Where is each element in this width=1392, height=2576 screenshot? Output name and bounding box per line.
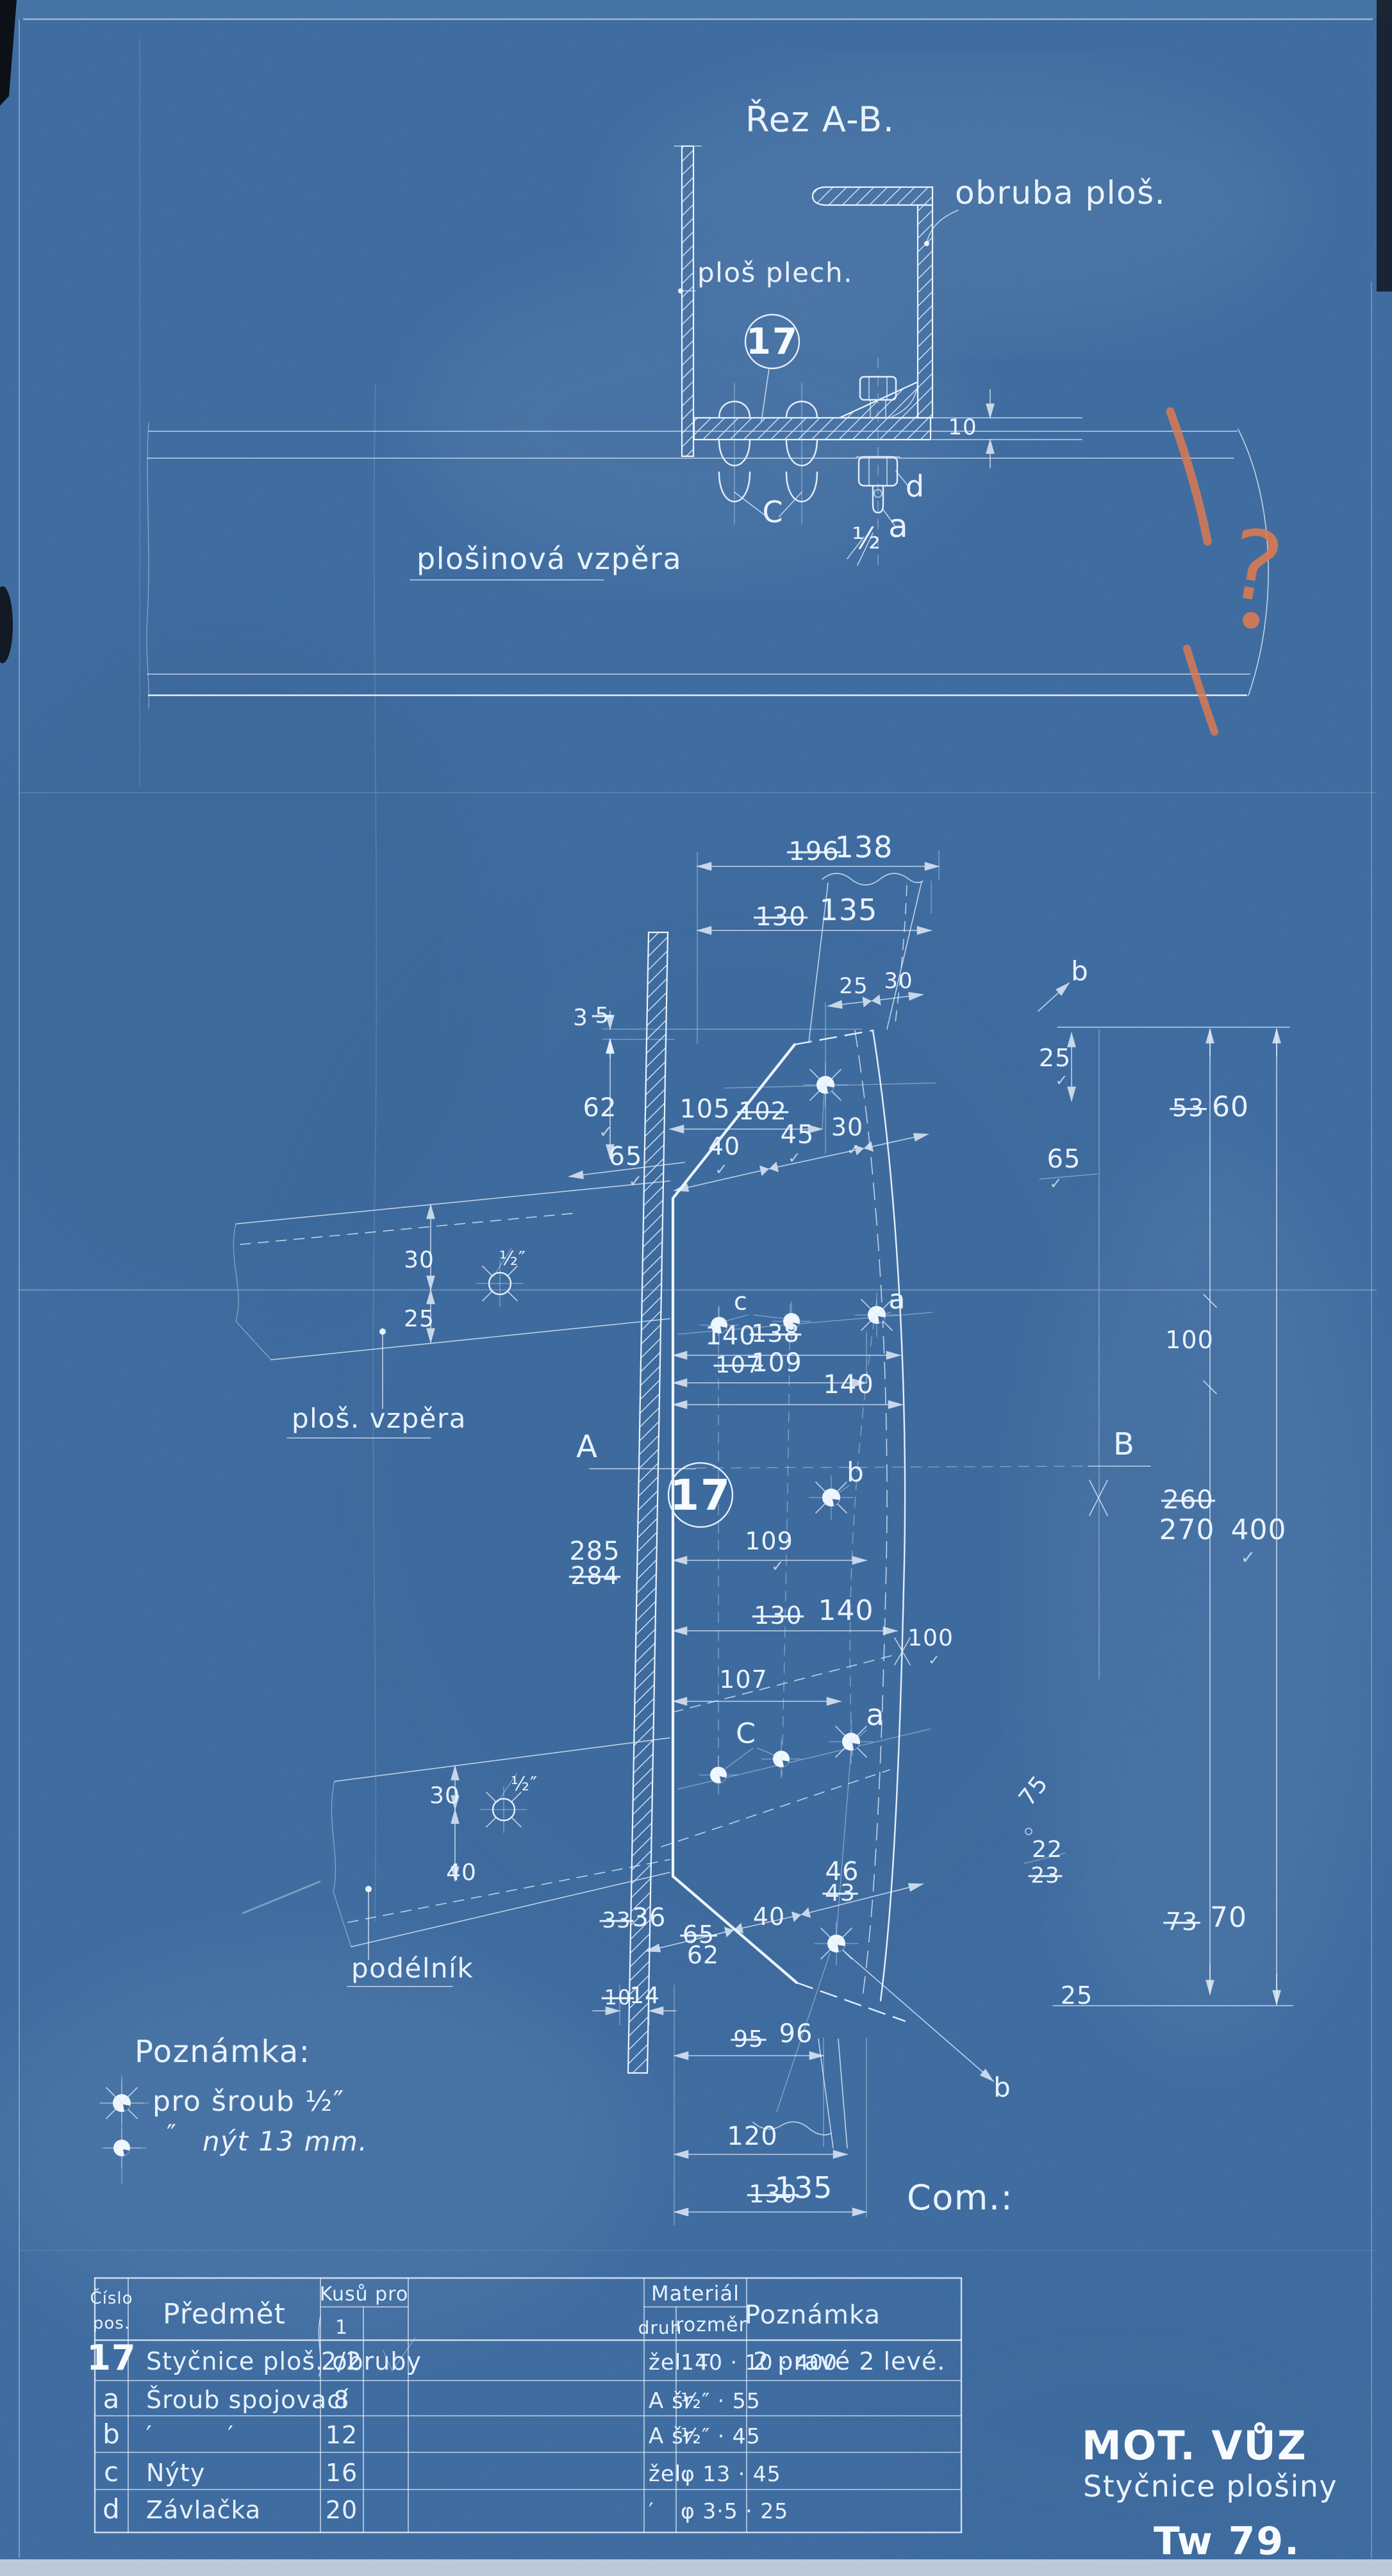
- dimension-label: ½″: [511, 1773, 538, 1796]
- dimension-label: 22: [1032, 1837, 1063, 1863]
- table-cell-position: b: [103, 2418, 120, 2450]
- dimension-label: C: [736, 1717, 756, 1750]
- table-cell-position: 17: [87, 2338, 136, 2378]
- dimension-label: C: [762, 495, 783, 529]
- dimension-label: 30: [404, 1247, 435, 1273]
- dimension-label: 45: [781, 1120, 815, 1150]
- dimension-label: 14: [629, 1983, 660, 2009]
- header-rozmer: rozměr: [675, 2314, 747, 2336]
- part-number: 17: [746, 321, 799, 363]
- table-cell-material-size: ½″ · 55: [681, 2388, 761, 2413]
- dimension-label: 60: [1212, 1091, 1249, 1123]
- table-cell-note: 2 pravé 2 levé.: [753, 2347, 945, 2375]
- splice-plate: [694, 418, 931, 440]
- dimension-label: 65: [609, 1142, 643, 1171]
- dimension-label: 30: [884, 968, 913, 994]
- table-cell-position: d: [103, 2493, 120, 2525]
- table-cell-position: a: [103, 2383, 120, 2415]
- dimension-label: 30: [831, 1113, 863, 1141]
- dimension-label: 36: [633, 1903, 667, 1933]
- header-poznamka: Poznámka: [745, 2300, 881, 2330]
- dimension-label: 25: [1061, 1981, 1093, 2010]
- dimension-label: 62: [583, 1093, 617, 1123]
- label-beam: plošinová vzpěra: [417, 541, 682, 576]
- dimension-label: 25: [839, 973, 868, 999]
- dimension-label: 120: [727, 2122, 777, 2151]
- section-title: Řez A-B.: [745, 99, 895, 140]
- dimension-label: ½″: [499, 1248, 526, 1270]
- header-pos: pos.: [93, 2314, 130, 2333]
- dimension-label: 400: [1231, 1514, 1287, 1546]
- legend-rivet-note: nýt 13 mm.: [203, 2126, 368, 2157]
- leader-dot: [678, 288, 683, 293]
- table-cell-qty: 12: [326, 2421, 358, 2449]
- dimension-label: 140: [705, 1321, 756, 1351]
- check-mark: ✓: [1055, 1071, 1068, 1089]
- dimension-label: 25: [1039, 1044, 1071, 1072]
- dimension-label: b: [993, 2072, 1011, 2103]
- legend-screw-note: pro šroub ½″: [153, 2085, 345, 2118]
- dimension-label: 140: [823, 1370, 874, 1399]
- dimension-label: a: [866, 1697, 884, 1732]
- table-cell-item: Styčnice ploš. obruby: [146, 2347, 422, 2375]
- check-mark: ✓: [847, 1141, 860, 1159]
- dimension-label: B: [1113, 1426, 1135, 1462]
- check-mark: ✓: [599, 1123, 614, 1142]
- blueprint-sheet: Řez A-B. 17: [0, 0, 1392, 2576]
- label-strut: ploš. vzpěra: [292, 1403, 467, 1434]
- dimension-label: a: [888, 508, 909, 545]
- dimension-label: 109: [745, 1527, 793, 1555]
- dimension-label: A: [576, 1429, 598, 1465]
- dimension-label: 40: [446, 1860, 477, 1886]
- check-mark: ✓: [1049, 1175, 1063, 1193]
- dimension-label: 138: [835, 830, 893, 864]
- dimension-label: 107: [719, 1665, 768, 1694]
- table-cell-qty: 8: [333, 2386, 349, 2414]
- leader-dot: [924, 241, 929, 246]
- dimension-label: 100: [907, 1625, 954, 1651]
- dimension-label: c: [734, 1287, 748, 1316]
- table-cell-material-type: ′: [649, 2498, 654, 2524]
- dimension-label: b: [847, 1457, 865, 1488]
- legend-title: Poznámka:: [135, 2034, 310, 2070]
- check-mark: ✓: [771, 1557, 784, 1575]
- check-mark: ✓: [629, 1172, 643, 1191]
- label-obruba: obruba ploš.: [955, 174, 1166, 211]
- project-title: MOT. VŮZ: [1082, 2422, 1307, 2469]
- dimension-label: a: [889, 1284, 906, 1315]
- table-cell-material-size: ½″ · 45: [681, 2423, 761, 2448]
- header-kusu-1: 1: [335, 2316, 348, 2339]
- dimension-label: 135: [820, 893, 878, 927]
- dimension-label: 109: [751, 1348, 802, 1378]
- header-cislo: Číslo: [90, 2288, 133, 2308]
- dimension-label: 105: [679, 1094, 730, 1124]
- dimension-label: 40: [708, 1132, 740, 1160]
- dimension-label: 70: [1210, 1901, 1247, 1934]
- red-dot: [1243, 612, 1259, 629]
- dimension-label: 140: [818, 1594, 874, 1627]
- legend-screw-icon: [100, 2081, 144, 2125]
- dimension-label: 100: [1165, 1326, 1214, 1354]
- header-material: Materiál: [651, 2281, 740, 2306]
- legend-ditto: ″: [167, 2120, 177, 2149]
- dimension-label: 65: [1047, 1144, 1081, 1174]
- paper-background: [0, 0, 1392, 2576]
- drawing-title: Styčnice plošiny: [1083, 2469, 1338, 2504]
- table-cell-qty: 20: [326, 2496, 358, 2524]
- dimension-label: 40: [753, 1903, 785, 1931]
- table-cell-qty: 2/2: [321, 2347, 362, 2375]
- dimension-label: 25: [404, 1306, 435, 1332]
- table-cell-qty: 16: [326, 2459, 358, 2487]
- dimension-label: ½: [852, 521, 881, 556]
- dimension-label: 135: [775, 2170, 833, 2205]
- part-balloon-main: 17: [668, 1463, 733, 1527]
- table-cell-item: Šroub spojovací: [146, 2386, 349, 2414]
- check-mark: ✓: [928, 1653, 940, 1669]
- sheet-number: Tw 79.: [1154, 2519, 1300, 2564]
- dimension-label: 10: [948, 415, 977, 440]
- dimension-label: 62: [687, 1941, 719, 1969]
- table-cell-item: Nýty: [146, 2459, 205, 2487]
- dimension-label: 270: [1159, 1514, 1215, 1546]
- table-cell-material-size: φ 13 · 45: [681, 2461, 781, 2486]
- dimension-label: 96: [779, 2019, 813, 2049]
- dimension-label: d: [906, 469, 925, 504]
- label-stringer: podélník: [351, 1953, 474, 1984]
- table-cell-item: Závlačka: [146, 2496, 261, 2524]
- check-mark: ✓: [1241, 1547, 1256, 1568]
- table-cell-position: c: [104, 2456, 119, 2488]
- label-plech: ploš plech.: [697, 257, 853, 288]
- table-cell-item: ′ ′: [146, 2421, 234, 2449]
- dimension-label: 30: [429, 1783, 460, 1809]
- check-mark: ✓: [715, 1160, 728, 1178]
- dimension-label: 3: [573, 1005, 588, 1031]
- header-kusu-pro: Kusů pro: [320, 2283, 408, 2306]
- part-number: 17: [670, 1471, 731, 1520]
- table-cell-material-size: φ 3·5 · 25: [681, 2498, 788, 2523]
- dimension-label: b: [1071, 955, 1089, 987]
- check-mark: ✓: [788, 1149, 801, 1167]
- header-predmet: Předmět: [163, 2298, 286, 2331]
- label-com: Com.:: [907, 2177, 1013, 2218]
